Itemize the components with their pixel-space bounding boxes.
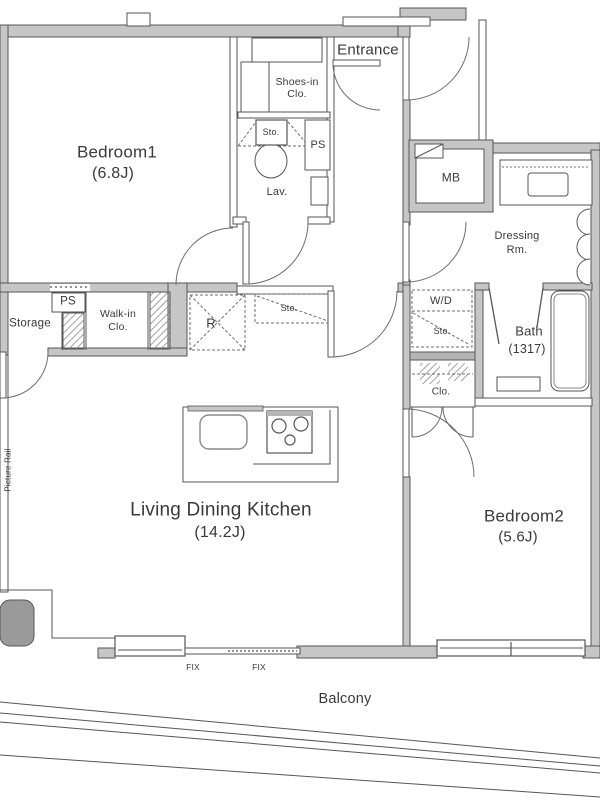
floor-plan: Bedroom1 (6.8J) Entrance Shoes-in Clo. S… — [0, 0, 600, 800]
vanity-sink-icon — [528, 173, 568, 196]
floor-plan-drawing — [0, 0, 600, 800]
dressing-room-label-2: Rm. — [507, 244, 528, 256]
hall-door-swing — [406, 37, 469, 100]
storage-label: Storage — [9, 318, 51, 331]
storage-above-kitchen-label: Sto. — [281, 303, 298, 313]
exterior-walls — [0, 8, 600, 658]
dressing-door-swing — [406, 222, 466, 282]
ldk-door-leaf — [328, 291, 334, 357]
wall-steps — [127, 13, 430, 26]
closet-door-left-swing — [412, 407, 442, 437]
closet-door-right-swing — [443, 407, 473, 437]
bath-folding-door — [537, 288, 543, 327]
bedroom1-size: (6.8J) — [92, 165, 134, 183]
lavatory-door-swing — [246, 222, 308, 284]
kitchen-sink-icon — [200, 415, 247, 449]
shoes-closet-label-1: Shoes-in — [275, 77, 318, 89]
shelf-hatch-left — [63, 313, 84, 349]
washer-dryer-label: W/D — [430, 295, 452, 307]
walk-in-closet-label-1: Walk-in — [100, 309, 136, 321]
entrance-door-swing — [333, 63, 380, 110]
dressing-vanity — [500, 160, 592, 205]
bedroom1-label: Bedroom1 — [77, 142, 157, 161]
picture-rail-label: Picture Rail — [5, 448, 14, 491]
ldk-door-swing — [331, 291, 397, 357]
balcony-label: Balcony — [319, 691, 372, 707]
pipe-shaft-hall-label: PS — [60, 296, 76, 309]
bedroom2-closet-label: Clo. — [432, 386, 451, 397]
terrace-window-frame — [115, 636, 185, 656]
bedroom2-closet — [410, 352, 475, 407]
bedroom1-door-swing — [176, 228, 233, 285]
ldk-label: Living Dining Kitchen — [130, 499, 312, 520]
walk-in-closet-label-2: Clo. — [108, 322, 127, 334]
dressing-room-label-1: Dressing — [494, 230, 539, 242]
storage-above-lav-label: Sto. — [263, 127, 280, 137]
entrance-door-leaf — [333, 60, 380, 66]
storage-door-leaf — [0, 352, 6, 398]
fix-window-label-2: FIX — [252, 663, 266, 673]
structural-column — [0, 600, 34, 646]
shoes-closet-label-2: Clo. — [287, 89, 306, 101]
bath-folding-door — [489, 288, 499, 344]
pipe-box — [311, 177, 328, 205]
lavatory-label: Lav. — [267, 186, 288, 198]
bath-step — [497, 377, 540, 391]
storage-door-swing — [2, 352, 48, 398]
bathtub-icon — [551, 291, 589, 391]
meter-box-label: MB — [442, 171, 460, 184]
entrance-label: Entrance — [337, 43, 399, 60]
bedroom2-door-leaf — [403, 409, 409, 477]
balcony-edge-lines — [0, 702, 600, 797]
dressing-folding-doors — [577, 209, 590, 285]
refrigerator-space — [190, 295, 245, 350]
lavatory-door-leaf — [243, 222, 249, 284]
stove-icon — [267, 411, 312, 453]
bath-label: Bath — [515, 325, 543, 340]
storage-above-wd-label: Sto. — [434, 326, 451, 336]
ldk-size: (14.2J) — [194, 524, 245, 542]
refrigerator-label: R — [206, 317, 216, 332]
walkin-opening — [50, 284, 90, 291]
hall-door-leaf — [403, 37, 409, 100]
kitchen-island — [183, 406, 338, 482]
shelf-hatch-right — [150, 292, 170, 349]
fix-window — [185, 648, 300, 654]
pipe-shaft-lav-label: PS — [310, 139, 325, 151]
dressing-door-leaf — [403, 222, 409, 282]
south-windows — [0, 590, 585, 656]
toilet-icon — [255, 144, 287, 178]
bath-room — [489, 288, 589, 391]
bath-size: (1317) — [508, 342, 545, 356]
bedroom2-size: (5.6J) — [498, 530, 538, 547]
fix-window-label-1: FIX — [186, 663, 200, 673]
bedroom2-label: Bedroom2 — [484, 506, 564, 525]
shoes-in-closet-cabinets — [241, 38, 322, 112]
